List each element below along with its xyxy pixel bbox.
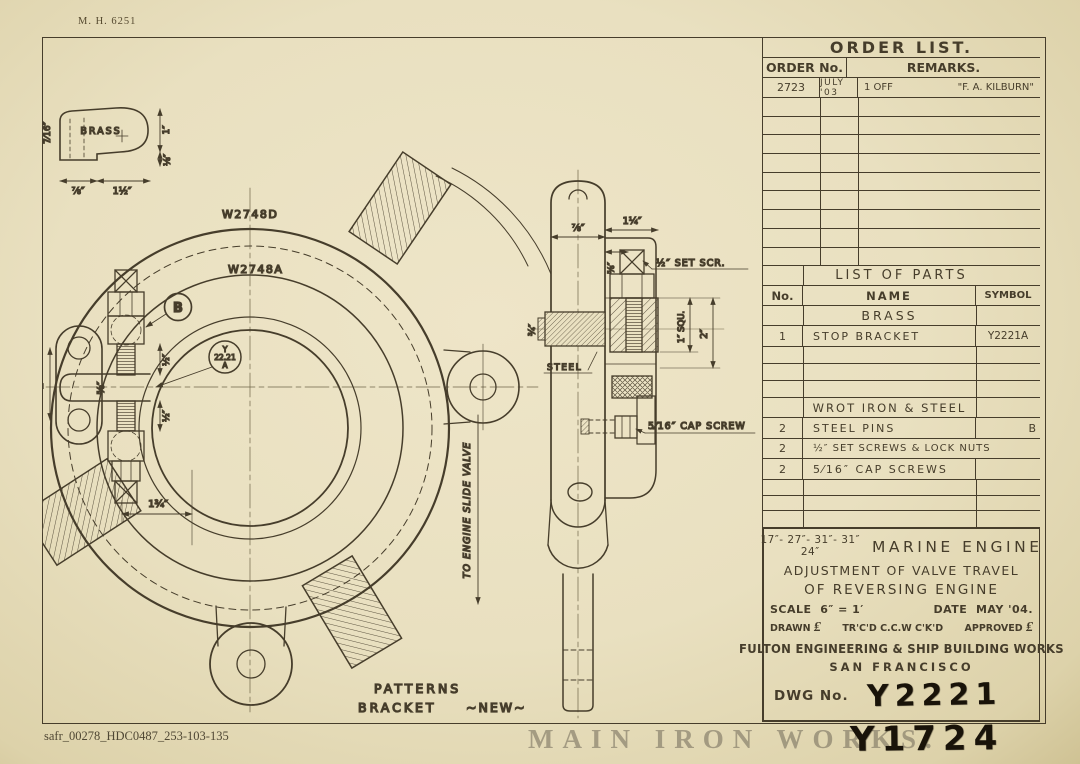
part-symbol: B (976, 418, 1040, 438)
balloon-b-label: B (173, 301, 183, 316)
subject-line-1: ADJUSTMENT OF VALVE TRAVEL (770, 563, 1033, 578)
brass-dim-bottom-right: 1½″ (113, 186, 132, 197)
dim-half-upper: ½″ (162, 353, 172, 366)
date-value: MAY '04. (976, 603, 1033, 616)
part-name: STEEL PINS (803, 418, 976, 438)
part-no: 1 (763, 326, 803, 346)
parts-brass-section-row: BRASS (763, 306, 1040, 326)
parts-no-header: No. (763, 286, 803, 305)
ref-w2748d: W2748D (222, 208, 278, 221)
dim-ear: 2″ (42, 379, 46, 389)
order-date-value: JULY '03 (820, 78, 858, 97)
order-list-empty-row (763, 117, 1040, 136)
side-dim-pin: ¾″ (528, 323, 538, 336)
note-patterns: PATTERNS (374, 681, 461, 696)
side-view: ⅞″ 1¼″ ⅝″ ½″ SET SCR. ¾″ STEEL 1″ SQU. 2… (528, 170, 755, 718)
part-symbol (976, 459, 1040, 479)
side-dim-offset: 1¼″ (623, 216, 642, 227)
parts-list-title-text: LIST OF PARTS (835, 268, 967, 283)
ref-w2748a: W2748A (228, 263, 283, 276)
pattern-notes: PATTERNS BRACKET ~NEW~ (358, 681, 527, 715)
engine-sizes-bottom: 24″ (801, 547, 820, 559)
brass-detail-view: BRASS 7⁄16″ 1″ ⅛″ ⅞″ 1½″ (43, 108, 173, 197)
engineering-drawing: BRASS 7⁄16″ 1″ ⅛″ ⅞″ 1½″ (42, 37, 762, 722)
parts-empty-row (763, 480, 1040, 496)
parts-empty-row (763, 381, 1040, 398)
part-symbol: Y2221A (976, 326, 1040, 346)
archive-code: safr_00278_HDC0487_253-103-135 (44, 729, 229, 744)
side-dim-width: ⅞″ (572, 223, 585, 234)
part-name: 5⁄16″ CAP SCREWS (803, 459, 976, 479)
parts-empty-row (763, 364, 1040, 381)
order-list-empty-row (763, 191, 1040, 210)
remarks-column-header: REMARKS. (847, 58, 1040, 77)
scale-label: SCALE (770, 603, 812, 616)
side-dim-step: ⅝″ (607, 262, 617, 273)
title-block-machine-row: 17″- 27″- 31″- 31″ 24″ MARINE ENGINE (770, 535, 1033, 558)
parts-empty-row (763, 511, 1040, 527)
dwg-no-label: DWG No. (774, 688, 849, 704)
signature-row: DRAWN ₤ TR'C'D C.C.W C'K'D APPROVED ₤ (770, 620, 1033, 636)
steel-section-label: WROT IRON & STEEL (803, 398, 976, 417)
side-label-set-screw: ½″ SET SCR. (656, 258, 726, 269)
side-label-cap-screw: 5⁄16″ CAP SCREW (648, 421, 746, 432)
order-no-column-header: ORDER No. (763, 58, 847, 77)
parts-row-cap-screws: 2 5⁄16″ CAP SCREWS (763, 459, 1040, 480)
order-list-empty-row (763, 154, 1040, 173)
order-list-title: ORDER LIST. (763, 37, 1040, 58)
scale-date-row: SCALE 6″ = 1′ DATE MAY '04. (770, 603, 1033, 616)
part-no: 2 (763, 418, 803, 438)
order-list-empty-row (763, 135, 1040, 154)
note-to-engine-slide-valve: TO ENGINE SLIDE VALVE (462, 442, 473, 579)
order-list-empty-row (763, 248, 1040, 267)
subject-line-2: OF REVERSING ENGINE (770, 582, 1033, 598)
parts-list-title: LIST OF PARTS (763, 266, 1040, 286)
scale-value: 6″ = 1′ (820, 603, 864, 616)
brass-dim-height: 7⁄16″ (43, 121, 53, 144)
order-list-title-text: ORDER LIST. (830, 38, 973, 57)
order-qty-value: 1 OFF (864, 82, 893, 93)
order-and-parts-tables: ORDER LIST. ORDER No. REMARKS. 2723 JULY… (762, 37, 1040, 527)
parts-empty-row (763, 347, 1040, 364)
dim-half-lower: ½″ (162, 409, 172, 422)
part-name: ½″ SET SCREWS & LOCK NUTS (803, 439, 1031, 458)
drawn-label: DRAWN (770, 623, 811, 634)
part-no: 2 (763, 439, 803, 458)
order-list-empty-row (763, 229, 1040, 248)
parts-empty-row (763, 496, 1040, 512)
brass-dim-right-bottom: ⅛″ (163, 153, 173, 166)
parts-row-set-screws: 2 ½″ SET SCREWS & LOCK NUTS (763, 439, 1040, 459)
note-new: ~NEW~ (466, 700, 527, 715)
title-block: 17″- 27″- 31″- 31″ 24″ MARINE ENGINE ADJ… (762, 527, 1040, 722)
y1724-stamp: Y1724 (850, 718, 1005, 760)
side-dim-height: 2″ (699, 329, 710, 339)
date-label: DATE (933, 603, 967, 616)
parts-name-header: NAME (803, 286, 976, 305)
approved-signature: ₤ (1026, 620, 1033, 635)
brass-dim-right-top: 1″ (162, 125, 172, 135)
front-view: B Y 22.21 A W2748D W2748A ½″ ½″ ⅝″ 2″ 1¾… (42, 152, 551, 712)
side-dim-square: 1″ SQU. (677, 311, 687, 343)
order-list-entry-row: 2723 JULY '03 1 OFF "F. A. KILBURN" (763, 78, 1040, 98)
company-city: SAN FRANCISCO (770, 660, 1033, 674)
traced-checked-note: TR'C'D C.C.W C'K'D (842, 623, 943, 634)
drawing-number-row: DWG No. Y2221 (770, 678, 1033, 713)
order-list-empty-row (763, 210, 1040, 229)
dwg-no-stamp: Y2221 (866, 677, 1002, 714)
side-label-steel: STEEL (547, 363, 582, 373)
brass-dim-bottom-left: ⅞″ (72, 186, 85, 197)
part-no: 2 (763, 459, 803, 479)
dim-lug: 1¾″ (148, 499, 168, 510)
parts-symbol-header: SYMBOL (976, 286, 1040, 305)
order-list-header-row: ORDER No. REMARKS. (763, 58, 1040, 78)
order-no-value: 2723 (763, 78, 820, 97)
brass-section-label: BRASS (803, 306, 976, 325)
parts-list-header-row: No. NAME SYMBOL (763, 286, 1040, 306)
parts-row-steel-pins: 2 STEEL PINS B (763, 418, 1040, 439)
dim-slot: ⅝″ (96, 381, 107, 394)
approved-label: APPROVED (965, 623, 1023, 634)
balloon-y-line3: A (222, 361, 228, 370)
machine-name: MARINE ENGINE (872, 538, 1043, 556)
sheet-corner-number: M. H. 6251 (78, 16, 136, 27)
engine-sizes: 17″- 27″- 31″- 31″ 24″ (761, 535, 861, 558)
order-remark-value: "F. A. KILBURN" (958, 82, 1034, 93)
part-name: STOP BRACKET (803, 326, 976, 346)
brass-label: BRASS (80, 126, 121, 137)
parts-row-stop-bracket: 1 STOP BRACKET Y2221A (763, 326, 1040, 347)
note-bracket: BRACKET (358, 700, 437, 715)
order-list-empty-row (763, 98, 1040, 117)
company-name: FULTON ENGINEERING & SHIP BUILDING WORKS (779, 641, 1024, 656)
drawn-signature: ₤ (814, 620, 821, 635)
order-list-empty-row (763, 173, 1040, 192)
parts-steel-section-row: WROT IRON & STEEL (763, 398, 1040, 418)
